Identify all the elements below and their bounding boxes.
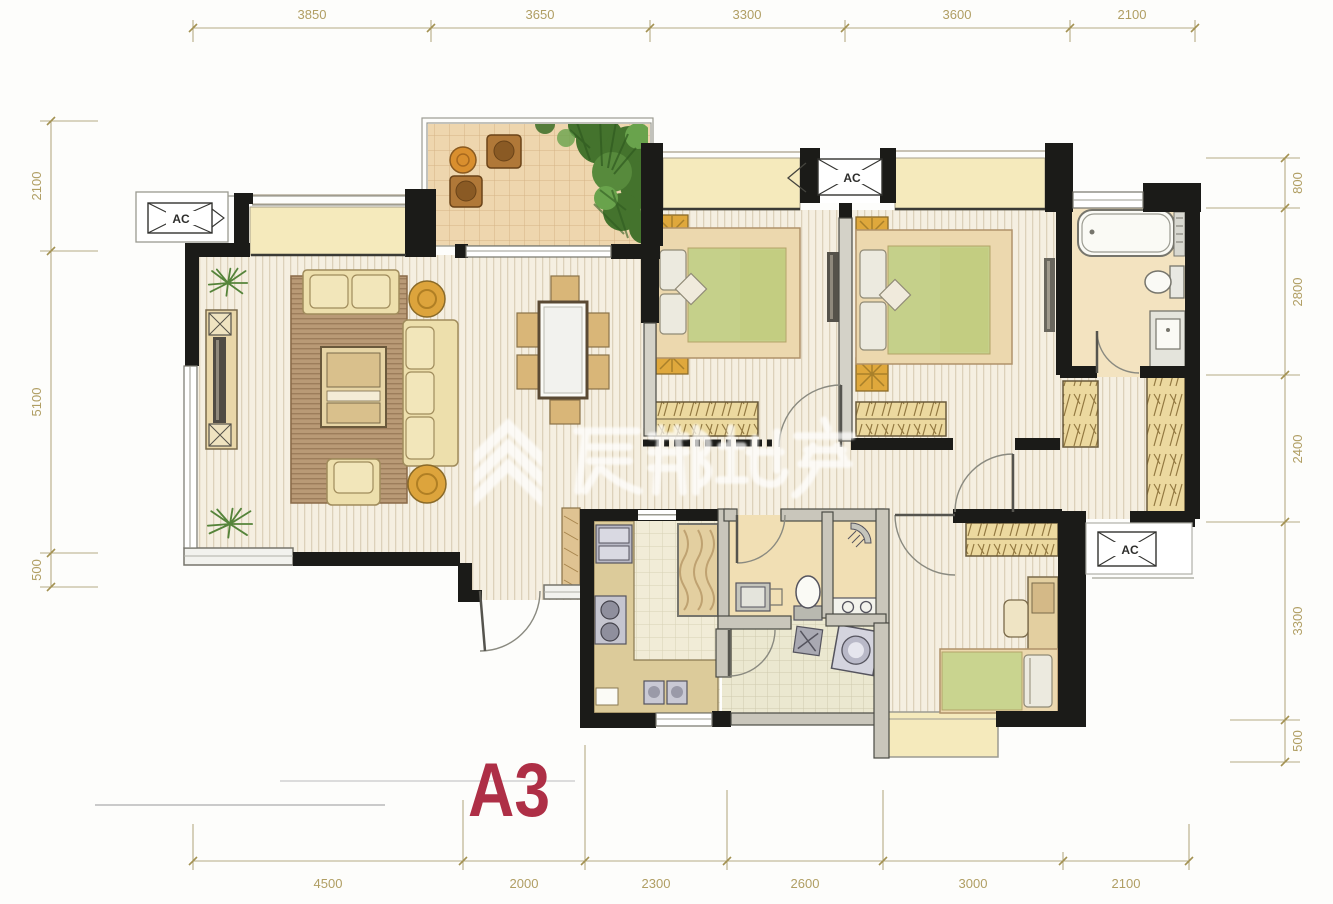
svg-text:2000: 2000 xyxy=(510,876,539,891)
svg-text:500: 500 xyxy=(1290,730,1305,752)
svg-text:AC: AC xyxy=(1121,543,1139,557)
svg-text:3650: 3650 xyxy=(526,7,555,22)
svg-text:500: 500 xyxy=(29,559,44,581)
svg-text:4500: 4500 xyxy=(314,876,343,891)
svg-text:A3: A3 xyxy=(468,748,550,833)
svg-text:2400: 2400 xyxy=(1290,435,1305,464)
svg-text:AC: AC xyxy=(843,171,861,185)
svg-text:5100: 5100 xyxy=(29,388,44,417)
svg-text:800: 800 xyxy=(1290,172,1305,194)
svg-text:3850: 3850 xyxy=(298,7,327,22)
svg-text:3300: 3300 xyxy=(733,7,762,22)
svg-text:2100: 2100 xyxy=(1118,7,1147,22)
svg-text:3000: 3000 xyxy=(959,876,988,891)
svg-text:2800: 2800 xyxy=(1290,278,1305,307)
svg-text:3600: 3600 xyxy=(943,7,972,22)
svg-text:3300: 3300 xyxy=(1290,607,1305,636)
svg-text:AC: AC xyxy=(172,212,190,226)
svg-text:2100: 2100 xyxy=(1112,876,1141,891)
svg-text:2100: 2100 xyxy=(29,172,44,201)
svg-text:2300: 2300 xyxy=(642,876,671,891)
svg-text:2600: 2600 xyxy=(791,876,820,891)
